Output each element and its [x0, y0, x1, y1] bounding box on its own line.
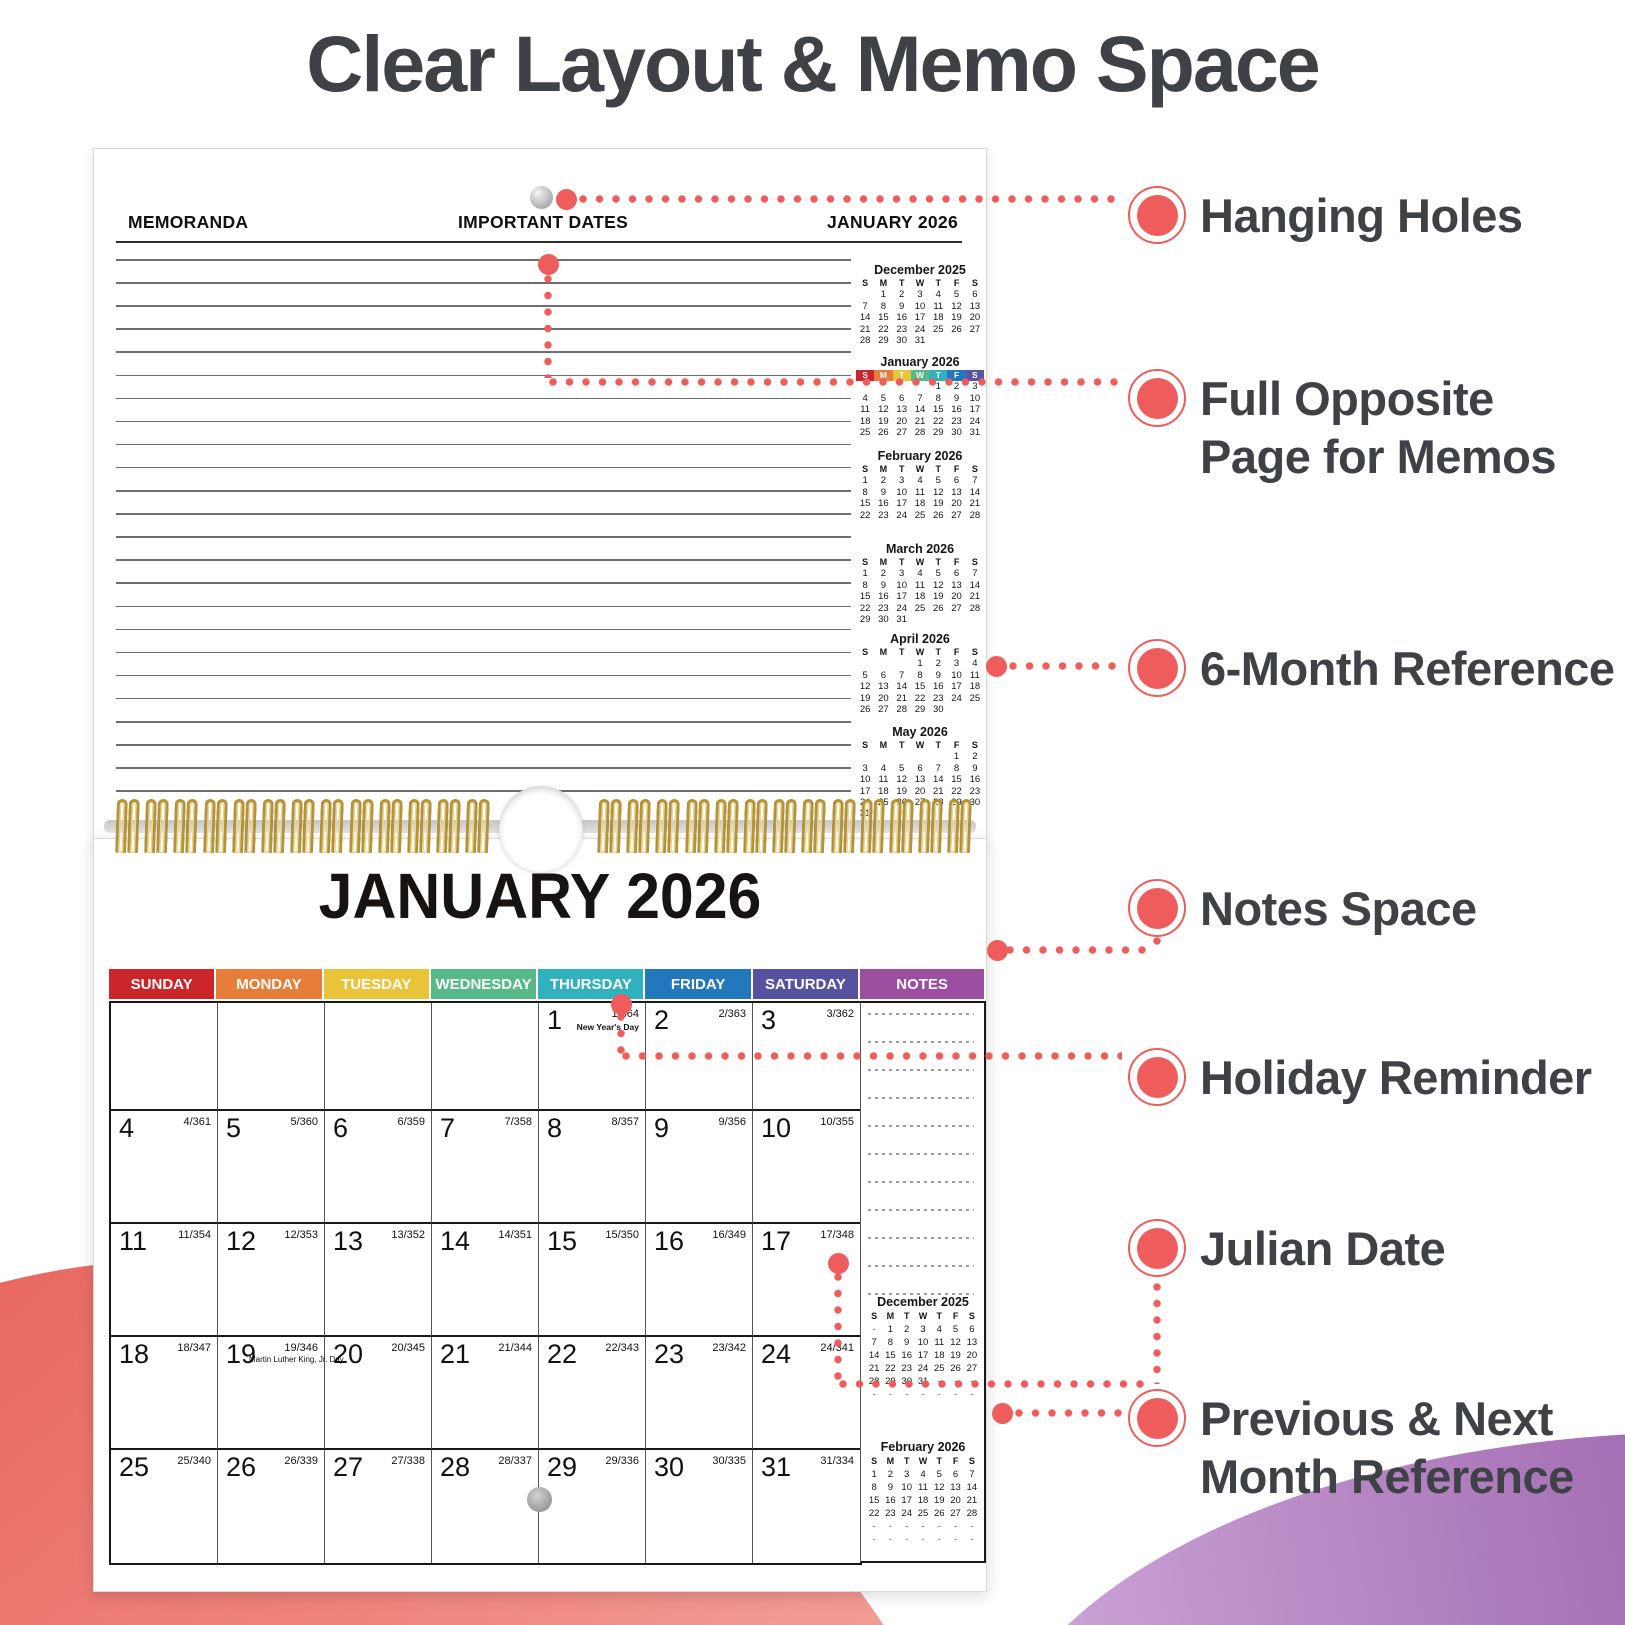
- day-header-sunday: SUNDAY: [109, 969, 214, 999]
- mini-weekday-row: SMTWTFS: [856, 278, 984, 289]
- annotation-marker-hanging-holes: [1128, 186, 1186, 244]
- memo-line: [116, 305, 851, 307]
- mini-date-row: 17181920212223: [856, 786, 984, 797]
- memo-line: [116, 421, 851, 423]
- callout-line: [1152, 936, 1162, 952]
- mini-date-row: 78910111213: [866, 1336, 980, 1349]
- callout-line: [621, 1051, 1122, 1061]
- day-number: 9: [654, 1113, 669, 1144]
- mini-date-row: 1234567: [866, 1468, 980, 1481]
- callout-dot: [986, 656, 1007, 677]
- annotation-label-6-month-reference: 6-Month Reference: [1200, 640, 1615, 698]
- day-cell-8: 88/357: [539, 1111, 646, 1224]
- memo-page: MEMORANDA IMPORTANT DATES JANUARY 2026 D…: [93, 148, 987, 849]
- mini-date-row: 22232425262728: [856, 510, 984, 521]
- day-cell-26: 2626/339: [218, 1450, 325, 1563]
- julian-date: 5/360: [290, 1116, 318, 1128]
- annotation-label-line: Previous & Next: [1200, 1390, 1574, 1448]
- day-number: 28: [440, 1452, 470, 1483]
- day-cell-25: 2525/340: [111, 1450, 218, 1563]
- day-number: 7: [440, 1113, 455, 1144]
- day-number: 4: [119, 1113, 134, 1144]
- mini-date-row: 21222324252627: [856, 324, 984, 335]
- day-number: 30: [654, 1452, 684, 1483]
- callout-line: [548, 377, 1122, 387]
- day-cell-empty: [111, 1003, 218, 1111]
- memo-line: [116, 398, 851, 400]
- annotation-marker-full-opposite-page-for-memos: [1128, 369, 1186, 427]
- annotation-label-line: Month Reference: [1200, 1448, 1574, 1506]
- mini-month-february-2026: February 2026SMTWTFS12345678910111213141…: [866, 1440, 980, 1546]
- callout-line: [838, 1379, 1150, 1389]
- memo-line: [116, 444, 851, 446]
- julian-date: 25/340: [177, 1455, 211, 1467]
- day-cell-16: 1616/349: [646, 1224, 753, 1337]
- day-cell-19: 1919/346Martin Luther King, Jr. Day: [218, 1337, 325, 1450]
- mini-month-title: March 2026: [856, 542, 984, 556]
- day-cell-18: 1818/347: [111, 1337, 218, 1450]
- notes-dotted-line: [868, 1125, 974, 1127]
- day-header-row: SUNDAYMONDAYTUESDAYWEDNESDAYTHURSDAYFRID…: [109, 969, 984, 999]
- notes-dotted-line: [868, 1097, 974, 1099]
- day-header-thursday: THURSDAY: [538, 969, 643, 999]
- calendar-page: JANUARY 2026 SUNDAYMONDAYTUESDAYWEDNESDA…: [93, 838, 987, 1592]
- annotation-label-hanging-holes: Hanging Holes: [1200, 187, 1523, 245]
- calendar-month-title: JANUARY 2026: [116, 859, 963, 933]
- day-cell-empty: [218, 1003, 325, 1111]
- day-number: 10: [761, 1113, 791, 1144]
- memo-line: [116, 559, 851, 561]
- mini-date-row: 293031: [856, 614, 984, 625]
- day-number: 29: [547, 1452, 577, 1483]
- mini-month-title: April 2026: [856, 632, 984, 646]
- day-cell-27: 2727/338: [325, 1450, 432, 1563]
- day-cell-empty: [325, 1003, 432, 1111]
- day-number: 6: [333, 1113, 348, 1144]
- memo-line: [116, 328, 851, 330]
- day-header-wednesday: WEDNESDAY: [431, 969, 536, 999]
- julian-date: 20/345: [391, 1342, 425, 1354]
- notes-column: December 2025SMTWTFS-1234567891011121314…: [860, 1001, 986, 1563]
- day-cell-12: 1212/353: [218, 1224, 325, 1337]
- callout-line: [543, 274, 553, 378]
- julian-date: 18/347: [177, 1342, 211, 1354]
- hanging-hole-icon: [530, 186, 553, 209]
- memo-line: [116, 467, 851, 469]
- julian-date: 2/363: [718, 1008, 746, 1020]
- julian-date: 3/362: [826, 1008, 854, 1020]
- mini-month-march-2026: March 2026SMTWTFS12345678910111213141516…: [856, 542, 984, 625]
- mini-date-row: 12: [856, 751, 984, 762]
- mini-month-title: December 2025: [866, 1295, 980, 1309]
- julian-date: 11/354: [178, 1229, 211, 1241]
- page-title: Clear Layout & Memo Space: [0, 18, 1625, 110]
- callout-line: [1152, 1282, 1162, 1384]
- julian-date: 31/334: [820, 1455, 854, 1467]
- day-number: 20: [333, 1339, 363, 1370]
- mini-date-row: 11121314151617: [856, 404, 984, 415]
- mini-date-row: 12131415161718: [856, 681, 984, 692]
- day-cell-23: 2323/342: [646, 1337, 753, 1450]
- julian-date: 8/357: [611, 1116, 639, 1128]
- day-number: 14: [440, 1226, 470, 1257]
- annotation-label-line: Hanging Holes: [1200, 187, 1523, 245]
- memo-line: [116, 375, 851, 377]
- mini-date-row: 21222324252627: [866, 1362, 980, 1375]
- memo-line: [116, 629, 851, 631]
- annotation-label-previous-next-month-reference: Previous & NextMonth Reference: [1200, 1390, 1574, 1506]
- mini-date-row: 28293031: [856, 335, 984, 346]
- day-number: 31: [761, 1452, 791, 1483]
- julian-date: 27/338: [391, 1455, 425, 1467]
- julian-date: 12/353: [284, 1229, 318, 1241]
- annotation-label-line: Julian Date: [1200, 1220, 1445, 1278]
- callout-line: [833, 1272, 843, 1380]
- memo-line: [116, 582, 851, 584]
- mini-date-row: 2627282930: [856, 704, 984, 715]
- day-cell-6: 66/359: [325, 1111, 432, 1224]
- julian-date: 16/349: [712, 1229, 746, 1241]
- day-cell-10: 1010/355: [753, 1111, 860, 1224]
- notes-dotted-line: [868, 1013, 974, 1015]
- day-cell-24: 2424/341: [753, 1337, 860, 1450]
- mini-date-row: 10111213141516: [856, 774, 984, 785]
- day-header-notes: NOTES: [860, 969, 984, 999]
- memo-header-month: JANUARY 2026: [827, 212, 958, 233]
- day-number: 11: [119, 1226, 147, 1257]
- mini-weekday-row: SMTWTFS: [856, 557, 984, 568]
- julian-date: 30/335: [712, 1455, 746, 1467]
- mini-weekday-row: SMTWTFS: [856, 464, 984, 475]
- day-number: 27: [333, 1452, 363, 1483]
- mini-date-row: -------: [866, 1520, 980, 1533]
- mini-date-row: 891011121314: [856, 580, 984, 591]
- mini-date-row: 14151617181920: [856, 312, 984, 323]
- memo-line: [116, 606, 851, 608]
- annotation-label-line: Holiday Reminder: [1200, 1049, 1592, 1107]
- julian-date: 21/344: [498, 1342, 532, 1354]
- annotation-label-line: 6-Month Reference: [1200, 640, 1615, 698]
- julian-date: 14/351: [498, 1229, 532, 1241]
- day-number: 17: [761, 1226, 791, 1257]
- calendar-product-infographic: Clear Layout & Memo Space MEMORANDA IMPO…: [0, 0, 1625, 1625]
- mini-date-row: -------: [866, 1533, 980, 1546]
- memo-line: [116, 513, 851, 515]
- mini-date-row: 14151617181920: [866, 1349, 980, 1362]
- day-number: 3: [761, 1005, 776, 1036]
- mini-month-april-2026: April 2026SMTWTFS12345678910111213141516…: [856, 632, 984, 715]
- julian-date: 6/359: [397, 1116, 425, 1128]
- memo-line: [116, 675, 851, 677]
- julian-date: 22/343: [605, 1342, 639, 1354]
- annotation-marker-holiday-reminder: [1128, 1048, 1186, 1106]
- julian-date: 17/348: [820, 1229, 854, 1241]
- notes-dotted-line: [868, 1265, 974, 1267]
- mini-date-row: 3456789: [856, 763, 984, 774]
- day-number: 13: [333, 1226, 363, 1257]
- day-cell-17: 1717/348: [753, 1224, 860, 1337]
- mini-date-row: 123456: [856, 289, 984, 300]
- notes-dotted-line: [868, 1041, 974, 1043]
- day-number: 22: [547, 1339, 577, 1370]
- annotation-label-julian-date: Julian Date: [1200, 1220, 1445, 1278]
- memo-header-row: MEMORANDA IMPORTANT DATES JANUARY 2026: [128, 212, 958, 233]
- memo-line: [116, 744, 851, 746]
- mini-weekday-row: SMTWTFS: [866, 1455, 980, 1468]
- annotation-label-notes-space: Notes Space: [1200, 880, 1477, 938]
- day-header-friday: FRIDAY: [645, 969, 750, 999]
- mini-date-row: 891011121314: [856, 487, 984, 498]
- day-cell-5: 55/360: [218, 1111, 325, 1224]
- mini-month-february-2026: February 2026SMTWTFS12345678910111213141…: [856, 449, 984, 521]
- day-cell-13: 1313/352: [325, 1224, 432, 1337]
- mini-date-row: 31: [856, 808, 984, 819]
- day-cell-4: 44/361: [111, 1111, 218, 1224]
- day-cell-9: 99/356: [646, 1111, 753, 1224]
- day-cell-14: 1414/351: [432, 1224, 539, 1337]
- annotation-label-full-opposite-page-for-memos: Full OppositePage for Memos: [1200, 370, 1556, 486]
- annotation-label-line: Page for Memos: [1200, 428, 1556, 486]
- mini-date-row: 25262728293031: [856, 427, 984, 438]
- memo-header-memoranda: MEMORANDA: [128, 212, 458, 233]
- mini-month-title: February 2026: [866, 1440, 980, 1454]
- julian-date: 23/342: [712, 1342, 746, 1354]
- day-number: 21: [440, 1339, 470, 1370]
- day-number: 25: [119, 1452, 149, 1483]
- mini-date-row: 45678910: [856, 393, 984, 404]
- mini-month-title: January 2026: [856, 355, 984, 369]
- day-cell-15: 1515/350: [539, 1224, 646, 1337]
- mini-weekday-row: SMTWTFS: [856, 740, 984, 751]
- mini-date-row: 18192021222324: [856, 416, 984, 427]
- day-number: 2: [654, 1005, 669, 1036]
- mini-date-row: 78910111213: [856, 301, 984, 312]
- memo-line: [116, 282, 851, 284]
- punch-hole-icon: [527, 1487, 552, 1512]
- memo-line: [116, 652, 851, 654]
- day-cell-29: 2929/336: [539, 1450, 646, 1563]
- notes-dotted-line: [868, 1181, 974, 1183]
- notes-dotted-line: [868, 1069, 974, 1071]
- callout-line: [1008, 661, 1122, 671]
- day-cell-30: 3030/335: [646, 1450, 753, 1563]
- day-cell-empty: [432, 1003, 539, 1111]
- callout-dot: [828, 1253, 849, 1274]
- mini-month-title: December 2025: [856, 263, 984, 277]
- mini-date-row: 1234: [856, 658, 984, 669]
- day-number: 26: [226, 1452, 256, 1483]
- mini-date-row: 22232425262728: [856, 603, 984, 614]
- day-number: 1: [547, 1005, 562, 1036]
- callout-dot: [556, 189, 577, 210]
- notes-dotted-line: [868, 1209, 974, 1211]
- julian-date: 9/356: [718, 1116, 746, 1128]
- day-header-saturday: SATURDAY: [753, 969, 858, 999]
- annotation-label-line: Notes Space: [1200, 880, 1477, 938]
- mini-date-row: 19202122232425: [856, 693, 984, 704]
- mini-month-title: February 2026: [856, 449, 984, 463]
- callout-line: [1005, 945, 1153, 955]
- mini-date-row: 15161718192021: [856, 498, 984, 509]
- day-cell-11: 1111/354: [111, 1224, 218, 1337]
- julian-date: 7/358: [504, 1116, 532, 1128]
- day-number: 24: [761, 1339, 791, 1370]
- callout-line: [578, 194, 1122, 204]
- day-number: 18: [119, 1339, 149, 1370]
- callout-dot: [538, 254, 559, 275]
- notes-dotted-line: [868, 1237, 974, 1239]
- callout-line: [1014, 1408, 1122, 1418]
- notes-dotted-line: [868, 1153, 974, 1155]
- memo-line: [116, 698, 851, 700]
- day-cell-7: 77/358: [432, 1111, 539, 1224]
- month-grid: 11/364New Year's Day22/36333/36244/36155…: [109, 1001, 862, 1565]
- annotation-label-line: Full Opposite: [1200, 370, 1556, 428]
- memo-line: [116, 721, 851, 723]
- memo-line: [116, 490, 851, 492]
- julian-date: 13/352: [391, 1229, 425, 1241]
- day-number: 5: [226, 1113, 241, 1144]
- mini-date-row: 567891011: [856, 670, 984, 681]
- mini-date-row: 24252627282930: [856, 797, 984, 808]
- day-number: 8: [547, 1113, 562, 1144]
- day-cell-21: 2121/344: [432, 1337, 539, 1450]
- annotation-marker-previous-next-month-reference: [1128, 1389, 1186, 1447]
- julian-date: 19/346: [284, 1342, 318, 1354]
- day-cell-31: 3131/334: [753, 1450, 860, 1563]
- memo-header-important-dates: IMPORTANT DATES: [458, 212, 628, 233]
- mini-month-december-2025: December 2025SMTWTFS12345678910111213141…: [856, 263, 984, 346]
- annotation-marker-notes-space: [1128, 879, 1186, 937]
- memo-line: [116, 351, 851, 353]
- mini-date-row: -123456: [866, 1323, 980, 1336]
- holiday-label: New Year's Day: [577, 1022, 639, 1032]
- mini-date-row: 1234567: [856, 475, 984, 486]
- mini-date-row: -------: [866, 1388, 980, 1401]
- mini-date-row: 1234567: [856, 568, 984, 579]
- day-header-monday: MONDAY: [216, 969, 321, 999]
- mini-date-row: 15161718192021: [866, 1494, 980, 1507]
- day-cell-20: 2020/345: [325, 1337, 432, 1450]
- julian-date: 4/361: [183, 1116, 211, 1128]
- julian-date: 28/337: [498, 1455, 532, 1467]
- memo-line: [116, 259, 851, 261]
- mini-weekday-row: SMTWTFS: [866, 1310, 980, 1323]
- mini-month-title: May 2026: [856, 725, 984, 739]
- day-header-tuesday: TUESDAY: [324, 969, 429, 999]
- annotation-marker-6-month-reference: [1128, 639, 1186, 697]
- annotation-marker-julian-date: [1128, 1219, 1186, 1277]
- julian-date: 10/355: [820, 1116, 854, 1128]
- mini-date-row: 15161718192021: [856, 591, 984, 602]
- mini-month-january-2026: January 2026SMTWTFS123456789101112131415…: [856, 355, 984, 438]
- mini-month-may-2026: May 2026SMTWTFS1234567891011121314151617…: [856, 725, 984, 820]
- julian-date: 26/339: [284, 1455, 318, 1467]
- day-number: 12: [226, 1226, 256, 1257]
- memo-line: [116, 536, 851, 538]
- mini-date-row: 891011121314: [866, 1481, 980, 1494]
- day-number: 23: [654, 1339, 684, 1370]
- memo-line: [116, 767, 851, 769]
- day-number: 16: [654, 1226, 684, 1257]
- day-number: 15: [547, 1226, 577, 1257]
- annotation-label-holiday-reminder: Holiday Reminder: [1200, 1049, 1592, 1107]
- mini-date-row: 22232425262728: [866, 1507, 980, 1520]
- julian-date: 29/336: [605, 1455, 639, 1467]
- julian-date: 15/350: [605, 1229, 639, 1241]
- memo-line: [116, 790, 851, 792]
- mini-weekday-row: SMTWTFS: [856, 647, 984, 658]
- callout-line: [616, 1012, 626, 1058]
- day-cell-22: 2222/343: [539, 1337, 646, 1450]
- memo-header-rule: [116, 241, 962, 243]
- day-cell-28: 2828/337: [432, 1450, 539, 1563]
- callout-dot: [992, 1403, 1013, 1424]
